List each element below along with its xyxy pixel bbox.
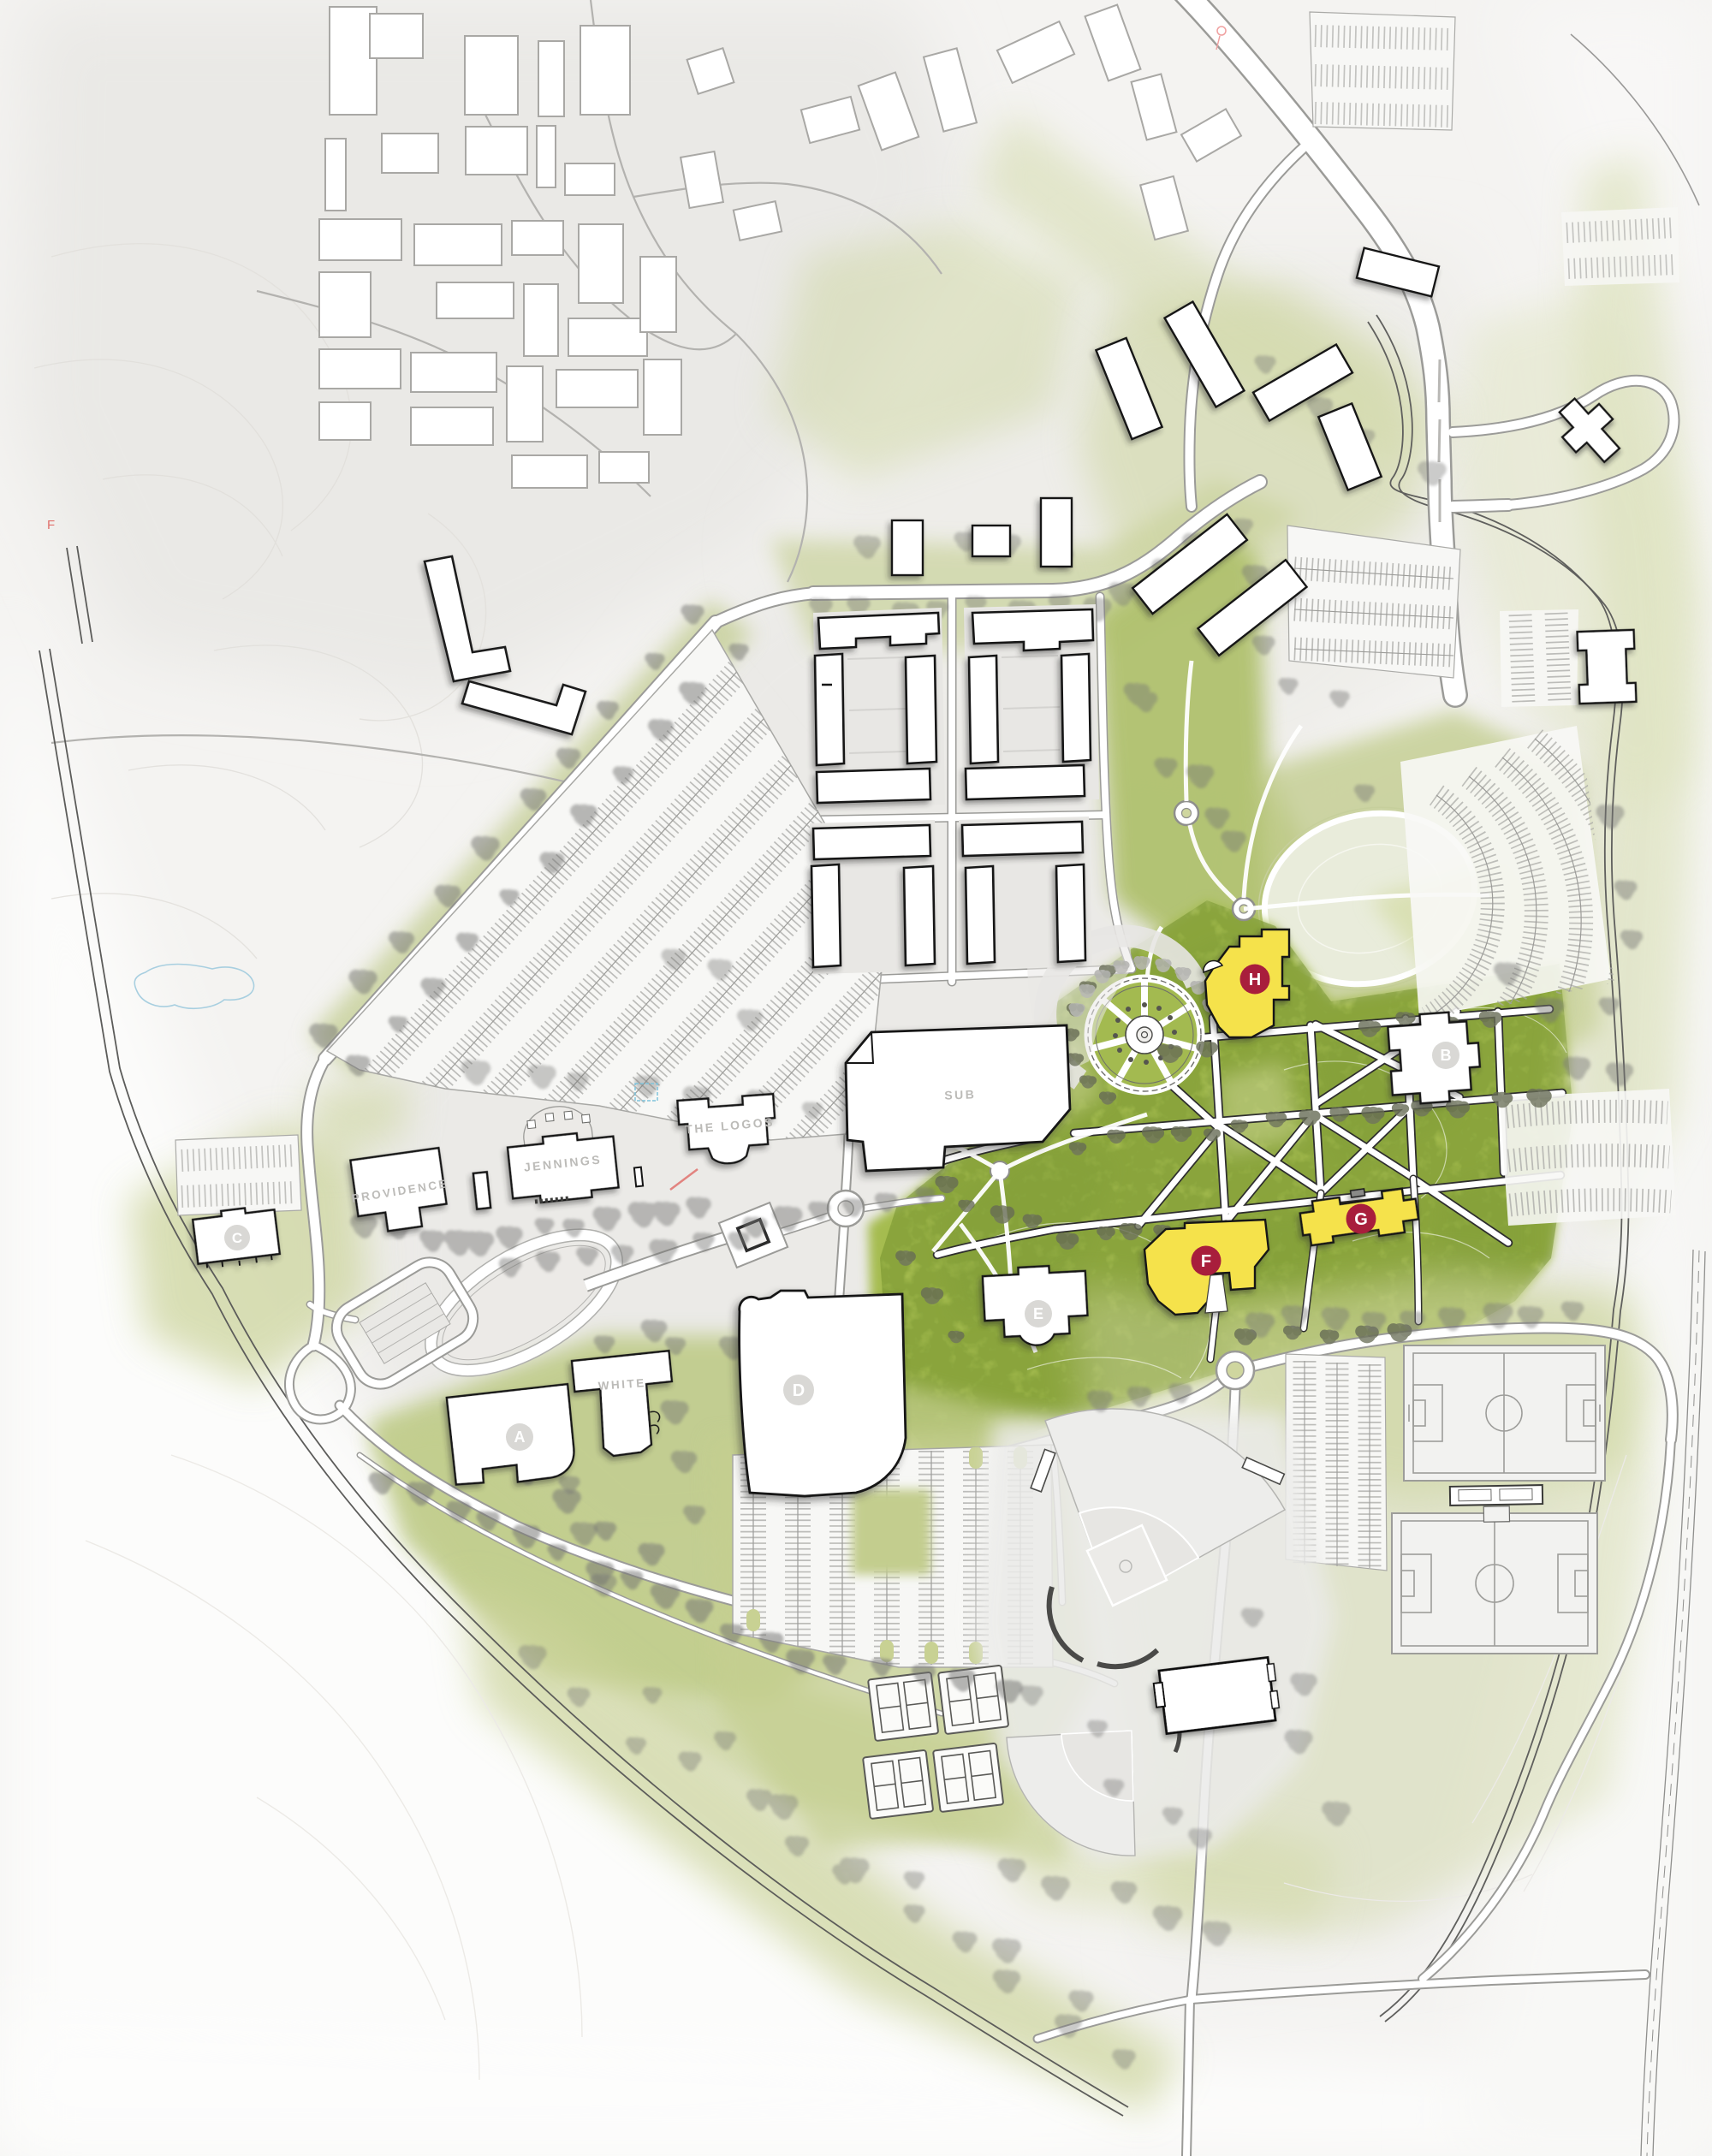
svg-text:B: B [1441,1047,1452,1064]
svg-text:A: A [514,1428,526,1446]
svg-text:C: C [232,1230,242,1246]
svg-text:D: D [793,1381,805,1400]
svg-text:H: H [1249,971,1261,989]
svg-text:SUB: SUB [944,1087,977,1102]
svg-text:G: G [1354,1210,1368,1229]
svg-text:F: F [47,518,55,532]
svg-text:E: E [1033,1305,1043,1322]
svg-text:F: F [1201,1252,1211,1271]
